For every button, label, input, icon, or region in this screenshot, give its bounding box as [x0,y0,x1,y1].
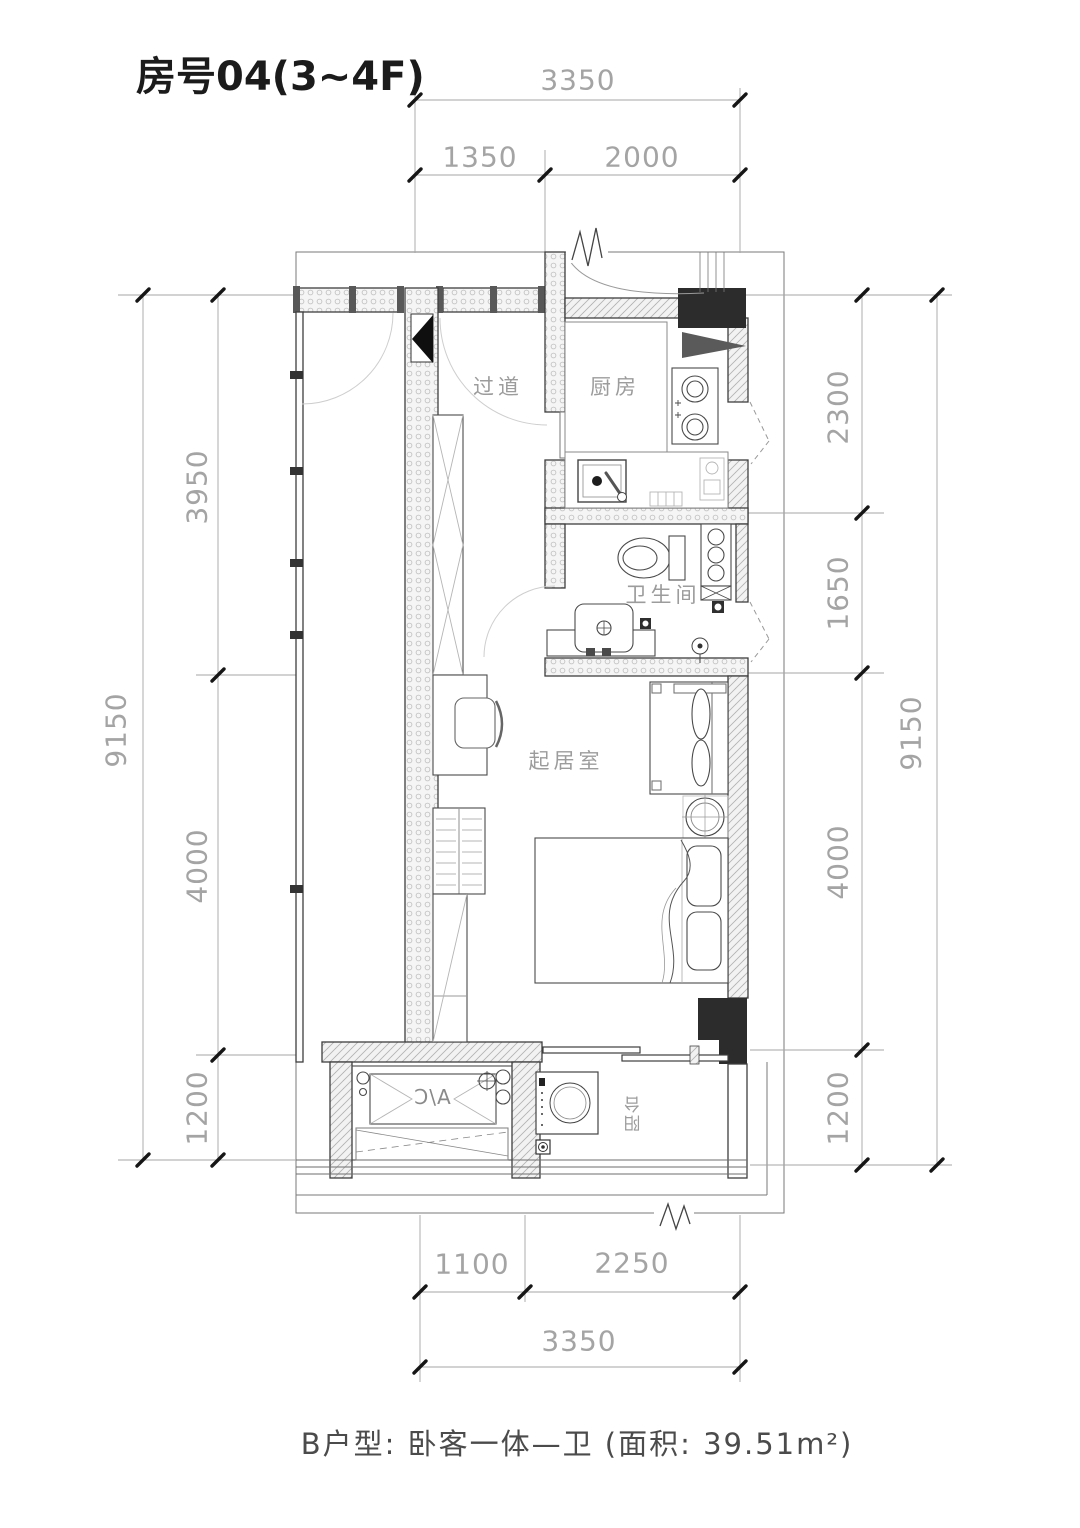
dim-label-right-2: 1650 [822,555,855,630]
dim-label-bottom-2: 2250 [594,1247,669,1280]
dim-label-top-overall: 3350 [540,64,615,97]
chair-icon [455,698,502,748]
ac-unit-label: A/C [413,1085,450,1109]
floorplan-page: 房号04(3~4F) 3350 1350 2000 9150 3950 4000… [0,0,1080,1528]
tv-cabinet [433,808,485,894]
dim-label-top-1: 1350 [442,141,517,174]
room-label-living: 起居室 [529,745,604,775]
dim-label-top-2: 2000 [604,141,679,174]
washing-machine-icon [536,1072,598,1134]
dimension-ticks [137,94,943,1373]
room-label-bathroom: 卫生间 [626,579,701,609]
pipe-lines [700,252,724,292]
dim-label-left-2: 4000 [181,828,214,903]
dim-label-right-4: 1200 [822,1070,855,1145]
dim-label-right-1: 2300 [822,369,855,444]
open-shelf [433,894,467,1042]
dim-label-right-overall: 9150 [895,695,928,770]
ac-platform-wall [322,1042,542,1062]
sofa [650,682,728,794]
bathroom-door-arc [484,586,555,657]
dim-label-left-3: 1200 [181,1070,214,1145]
dim-label-bottom-overall: 3350 [541,1325,616,1358]
plan-title: 房号04(3~4F) [136,44,425,102]
dimension-extension-lines [118,88,952,1382]
round-table-icon [682,794,728,840]
plan-caption: B户型: 卧客一体—卫 (面积: 39.51m²) [301,1421,854,1463]
vanity-sink-icon [547,604,655,656]
toilet-icon [618,536,685,580]
ac-outdoor-unit [352,1066,512,1160]
sliding-door-panel [622,1055,728,1061]
living-column [698,998,747,1064]
dim-label-left-overall: 9150 [100,692,133,767]
balcony-fixtures [352,1066,598,1160]
dim-label-right-3: 4000 [822,824,855,899]
room-label-kitchen: 厨房 [590,371,640,401]
entry-door-arc [302,313,393,404]
left-wall [296,312,303,1062]
bathroom-vent-dashed [750,602,769,662]
stove-icon [672,368,718,444]
bed [535,838,728,983]
room-label-corridor: 过道 [473,371,523,401]
dim-label-bottom-1: 1100 [434,1248,509,1281]
sliding-door-panel [543,1047,640,1053]
room-label-balcony: 阳台 [621,1093,643,1131]
kitchen-vent-dashed [750,402,769,464]
dim-label-left-1: 3950 [181,449,214,524]
sink-icon [578,460,627,502]
wardrobe [433,415,463,675]
bathroom-shelf [701,524,731,600]
balcony-drain-icon [536,1140,550,1154]
